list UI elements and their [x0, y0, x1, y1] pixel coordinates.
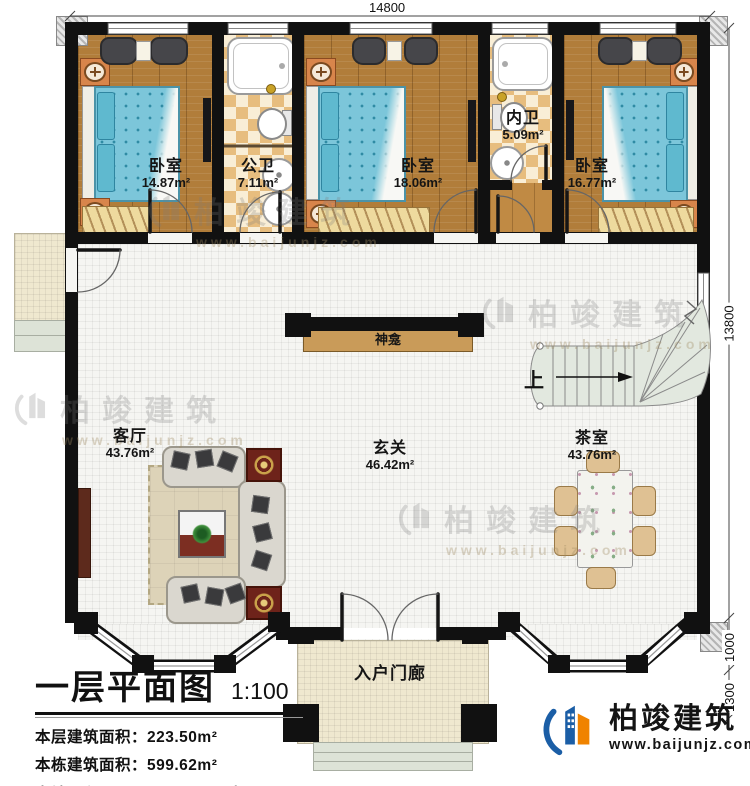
room-label-living-room: 客厅 43.76m²: [106, 428, 154, 460]
legend-row-3: 占地面积：229.80m² 层高：3.9m: [35, 782, 345, 786]
doors: [78, 146, 609, 640]
title-underline-2: [35, 717, 303, 718]
room-label-inner-bath: 内卫 5.09m²: [502, 110, 543, 142]
floor-plan: 神龛: [0, 0, 750, 786]
room-label-entry-porch: 入户门廊: [354, 664, 426, 683]
room-label-bedroom-left: 卧室 14.87m²: [142, 158, 190, 190]
company-name: 柏竣建筑: [609, 705, 750, 734]
dim-top: 14800: [366, 0, 408, 15]
legend-row-2: 本栋建筑面积：599.62m²: [35, 753, 345, 775]
room-label-foyer: 玄关 46.42m²: [366, 440, 414, 472]
room-label-bedroom-right: 卧室 16.77m²: [568, 158, 616, 190]
company-website: www.baijunjz.com: [609, 737, 750, 753]
company-logo-icon: [542, 700, 600, 758]
title-underline: [35, 712, 303, 715]
stair-up-label: 上: [524, 364, 544, 393]
dim-right: 13800: [722, 302, 737, 344]
company-logo: 柏竣建筑 www.baijunjz.com: [542, 700, 750, 758]
staircase: [531, 300, 711, 409]
plan-title: 一层平面图: [35, 660, 215, 709]
room-label-bedroom-mid: 卧室 18.06m²: [394, 158, 442, 190]
dim-1000: 1000: [722, 630, 737, 665]
room-label-tea-room: 茶室 43.76m²: [568, 430, 616, 462]
title-block: 一层平面图 1:100 本层建筑面积：223.50m² 本栋建筑面积：599.6…: [35, 660, 345, 786]
legend-row-1: 本层建筑面积：223.50m²: [35, 725, 345, 747]
walls: [65, 22, 710, 644]
room-label-public-bath: 公卫 7.11m²: [238, 158, 278, 190]
plan-scale: 1:100: [231, 678, 289, 705]
